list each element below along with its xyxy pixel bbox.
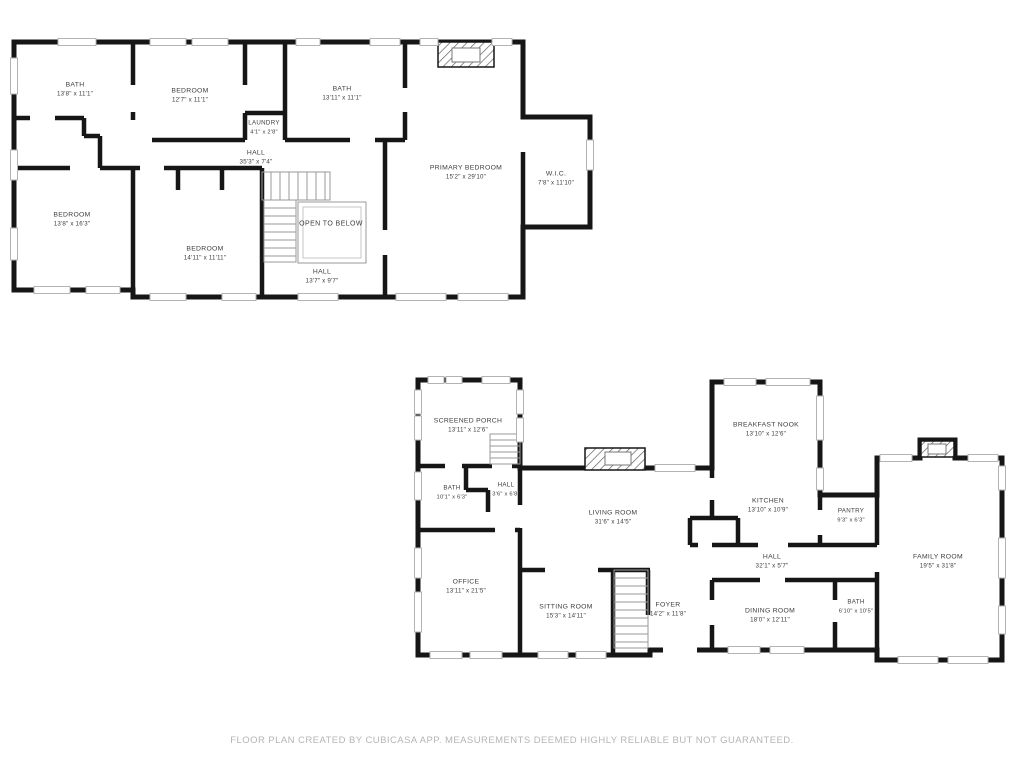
room-label-dining-room: DINING ROOM18'0" x 12'11" xyxy=(745,607,795,626)
main-floor-plan xyxy=(415,377,1006,664)
open-to-below-label: OPEN TO BELOW xyxy=(299,221,363,228)
room-label-living-room: LIVING ROOM31'6" x 14'5" xyxy=(589,509,638,528)
upper-floor-plan xyxy=(11,39,594,301)
footer-disclaimer: FLOOR PLAN CREATED BY CUBICASA APP. MEAS… xyxy=(0,735,1024,746)
floor-plan-drawing xyxy=(0,0,1024,768)
room-label-foyer: FOYER14'2" x 11'8" xyxy=(650,601,686,620)
room-label-bedroom-upper-mid: BEDROOM12'7" x 11'1" xyxy=(171,87,208,106)
room-label-primary-bedroom: PRIMARY BEDROOM15'2" x 29'10" xyxy=(430,164,502,183)
family-room-fireplace-icon xyxy=(921,441,954,457)
room-label-pantry: PANTRY9'3" x 6'3" xyxy=(837,507,865,524)
room-label-breakfast-nook: BREAKFAST NOOK13'10" x 12'6" xyxy=(733,421,799,440)
room-label-hall-13-7: HALL13'7" x 9'7" xyxy=(306,268,339,287)
room-label-hall-small: HALL3'6" x 6'8" xyxy=(492,481,520,498)
room-label-screened-porch: SCREENED PORCH13'11" x 12'6" xyxy=(434,417,502,436)
entry-door-gap xyxy=(663,646,697,655)
room-label-laundry: LAUNDRY4'1" x 2'8" xyxy=(248,119,280,136)
room-label-bedroom-left: BEDROOM13'8" x 16'3" xyxy=(53,211,90,230)
room-label-bath-main-left: BATH10'1" x 6'3" xyxy=(437,484,468,501)
fireplace-icon xyxy=(438,42,494,67)
room-label-bath-upper-left: BATH13'8" x 11'1" xyxy=(57,81,93,100)
room-label-bedroom-lower-mid: BEDROOM14'11" x 11'11" xyxy=(184,245,226,264)
living-room-fireplace-icon xyxy=(585,448,645,470)
floor-plan-page: BATH13'8" x 11'1" BEDROOM12'7" x 11'1" B… xyxy=(0,0,1024,768)
room-label-bath-main-right: BATH6'10" x 10'5" xyxy=(839,598,873,615)
room-label-family-room: FAMILY ROOM19'5" x 31'8" xyxy=(913,553,963,572)
room-label-office: OFFICE13'11" x 21'5" xyxy=(446,578,486,597)
room-label-kitchen: KITCHEN13'10" x 10'9" xyxy=(748,497,788,516)
room-label-bath-upper-right: BATH13'11" x 11'1" xyxy=(322,85,361,104)
room-label-hall-upper: HALL35'3" x 7'4" xyxy=(240,149,273,168)
room-label-sitting-room: SITTING ROOM15'3" x 14'11" xyxy=(539,603,592,622)
room-label-wic: W.I.C.7'8" x 11'10" xyxy=(538,170,574,189)
room-label-hall-main: HALL32'1" x 5'7" xyxy=(756,553,789,572)
